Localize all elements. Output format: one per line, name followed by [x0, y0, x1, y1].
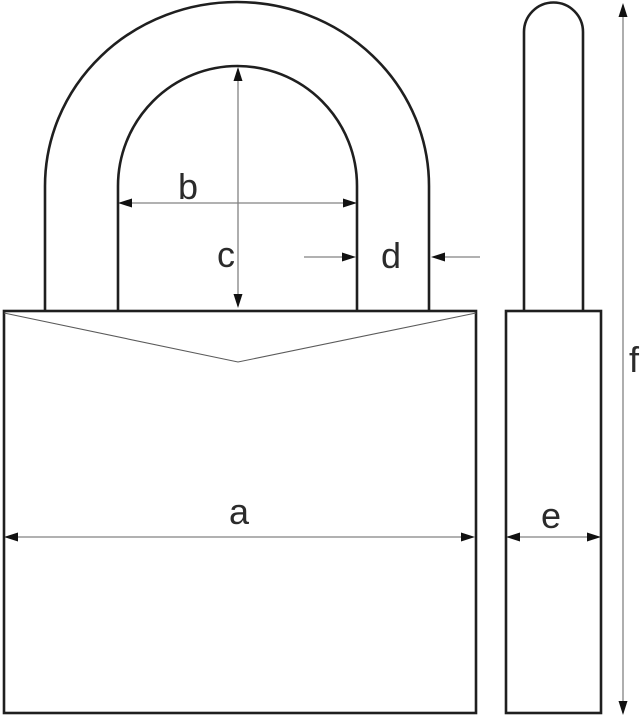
dimension-label-c: c: [217, 234, 235, 275]
dimension-c-arrowhead-top: [234, 67, 243, 81]
dimension-f: f: [619, 3, 640, 715]
dimension-e: e: [506, 495, 601, 542]
dimension-a-arrowhead-left: [4, 533, 18, 542]
dimension-f-arrowhead-bottom: [619, 701, 628, 715]
dimension-label-d: d: [381, 235, 401, 276]
dimension-a: a: [4, 491, 475, 542]
dimension-d-arrowhead-right: [431, 253, 445, 262]
dimension-label-e: e: [541, 495, 561, 536]
dimension-label-a: a: [229, 491, 250, 532]
front-body-v-notch: [4, 313, 476, 362]
padlock-dimension-diagram: a b c d e f: [0, 0, 640, 720]
dimension-label-f: f: [629, 339, 640, 380]
dimension-b-arrowhead-right: [343, 199, 357, 208]
front-shackle-outer-outline: [45, 2, 429, 311]
dimension-f-arrowhead-top: [619, 3, 628, 17]
dimension-d: d: [304, 235, 480, 276]
dimension-b-arrowhead-left: [118, 199, 132, 208]
side-shackle-outline: [524, 3, 583, 312]
dimension-c-arrowhead-bottom: [234, 294, 243, 308]
dimension-c: c: [217, 67, 243, 308]
dimension-label-b: b: [178, 166, 198, 207]
padlock-front-view: [4, 2, 476, 713]
dimension-e-arrowhead-left: [506, 533, 520, 542]
dimension-e-arrowhead-right: [587, 533, 601, 542]
dimension-d-arrowhead-left: [342, 253, 356, 262]
dimension-a-arrowhead-right: [461, 533, 475, 542]
padlock-side-view: [506, 3, 601, 714]
